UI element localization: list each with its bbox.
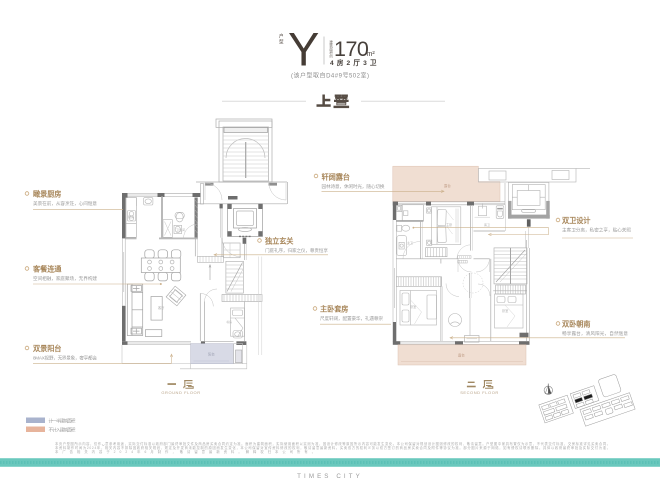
svg-text:主卫: 主卫: [407, 240, 413, 245]
svg-text:畅享露台，清风阳光，自然惬意: 畅享露台，清风阳光，自然惬意: [562, 330, 628, 337]
svg-text:不计入建筑面积: 不计入建筑面积: [49, 427, 76, 434]
svg-text:SECOND FLOOR: SECOND FLOOR: [460, 390, 499, 395]
svg-text:主卧: 主卧: [446, 222, 453, 227]
svg-text:卧室: 卧室: [502, 308, 508, 313]
svg-text:双卧朝南: 双卧朝南: [562, 320, 591, 329]
svg-text:空间相融，家庭聚场，无界构建: 空间相融，家庭聚场，无界构建: [33, 275, 97, 282]
svg-text:170: 170: [334, 37, 369, 61]
svg-text:计一半建筑面积: 计一半建筑面积: [49, 418, 76, 425]
svg-text:型: 型: [279, 38, 284, 44]
svg-text:卧室: 卧室: [410, 304, 416, 309]
svg-text:客卫: 客卫: [484, 222, 490, 227]
svg-text:门庭礼序，归家之仪，尊贵恒享: 门庭礼序，归家之仪，尊贵恒享: [265, 247, 328, 254]
svg-text:Y: Y: [288, 23, 319, 76]
svg-text:4房2厅3卫: 4房2厅3卫: [330, 58, 377, 67]
svg-text:书房: 书房: [226, 319, 232, 324]
svg-text:阳台: 阳台: [208, 352, 215, 357]
svg-text:主卧套房: 主卧套房: [320, 305, 349, 314]
svg-text:8MAX视野，无界景象，奢享都会: 8MAX视野，无界景象，奢享都会: [33, 355, 97, 362]
svg-text:露台: 露台: [458, 353, 465, 358]
svg-text:双景阳台: 双景阳台: [33, 344, 62, 353]
svg-text:双卫设计: 双卫设计: [562, 216, 591, 225]
svg-text:尺度轩阔，配置豪华，礼遇尊崇: 尺度轩阔，配置豪华，礼遇尊崇: [320, 315, 383, 322]
svg-text:美景在前，从容烹饪，心间惬意: 美景在前，从容烹饪，心间惬意: [33, 200, 97, 207]
svg-text:(该户型取自D4#9号502室): (该户型取自D4#9号502室): [291, 72, 369, 80]
svg-text:m²: m²: [367, 51, 376, 58]
svg-text:客厅: 客厅: [158, 305, 165, 310]
svg-text:主客卫分离，私密之享，贴心关照: 主客卫分离，私密之享，贴心关照: [562, 227, 631, 234]
svg-text:园林诗意，休闲时光，随心切换: 园林诗意，休闲时光，随心切换: [322, 183, 385, 190]
svg-text:GROUND FLOOR: GROUND FLOOR: [161, 390, 200, 395]
svg-text:独立玄关: 独立玄关: [264, 237, 294, 246]
svg-text:客餐连通: 客餐连通: [32, 265, 62, 274]
svg-text:瞰景厨房: 瞰景厨房: [33, 190, 62, 199]
svg-text:TIMES CITY: TIMES CITY: [297, 473, 363, 480]
svg-text:轩阔露台: 轩阔露台: [322, 173, 351, 182]
svg-text:露台: 露台: [444, 183, 451, 188]
